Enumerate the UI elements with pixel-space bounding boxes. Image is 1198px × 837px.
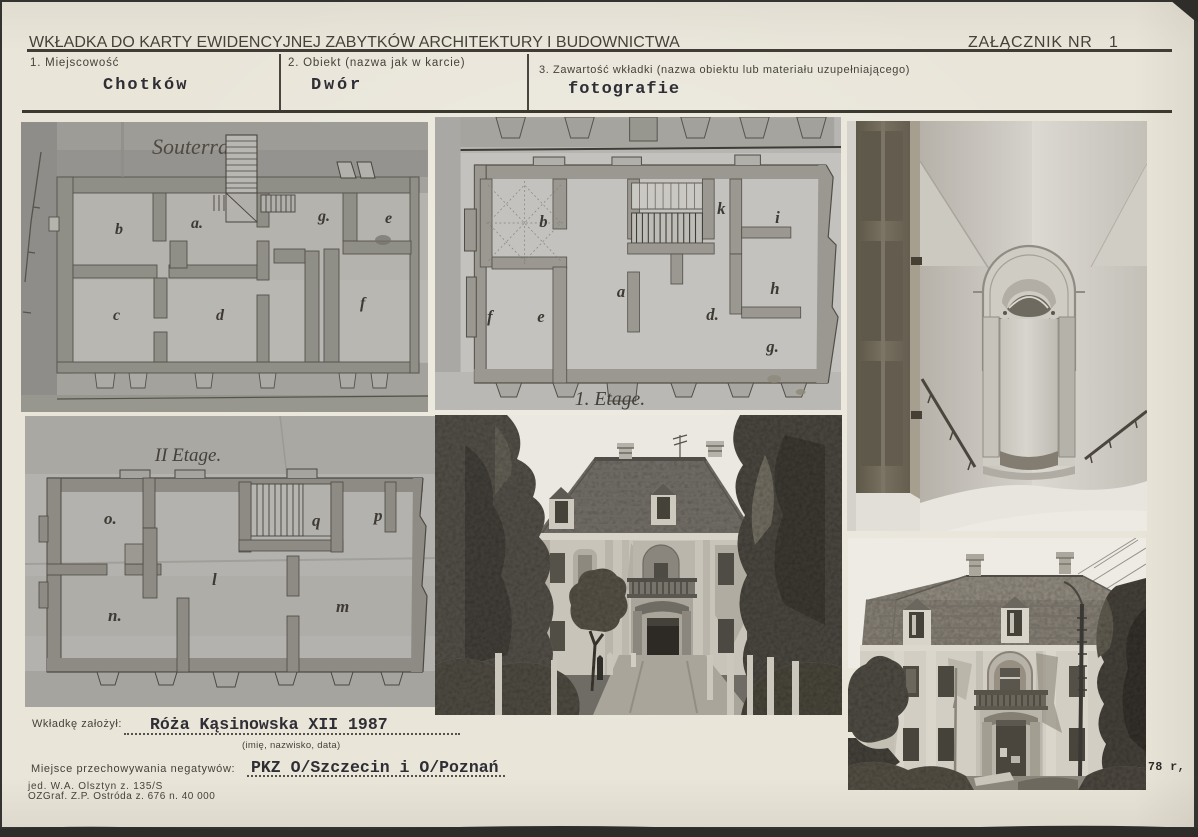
svg-text:m: m <box>336 597 349 616</box>
svg-text:II Etage.: II Etage. <box>154 445 221 466</box>
svg-text:d.: d. <box>706 305 719 324</box>
svg-text:a: a <box>617 282 626 301</box>
svg-text:c: c <box>113 307 120 324</box>
svg-text:k: k <box>717 199 726 218</box>
svg-text:h: h <box>770 279 779 298</box>
svg-text:o.: o. <box>104 509 117 528</box>
svg-text:d: d <box>216 307 225 324</box>
svg-text:e: e <box>385 210 392 227</box>
svg-text:a.: a. <box>191 215 203 232</box>
svg-text:q: q <box>312 511 321 530</box>
svg-text:g.: g. <box>765 337 779 356</box>
svg-text:l: l <box>212 570 217 589</box>
svg-text:n.: n. <box>108 606 122 625</box>
svg-text:1. Etage.: 1. Etage. <box>575 388 645 410</box>
svg-text:i: i <box>775 208 780 227</box>
svg-text:e: e <box>537 307 545 326</box>
svg-text:g.: g. <box>317 208 330 225</box>
svg-text:p: p <box>372 506 383 525</box>
svg-text:b: b <box>539 212 547 231</box>
svg-text:b: b <box>115 221 123 238</box>
